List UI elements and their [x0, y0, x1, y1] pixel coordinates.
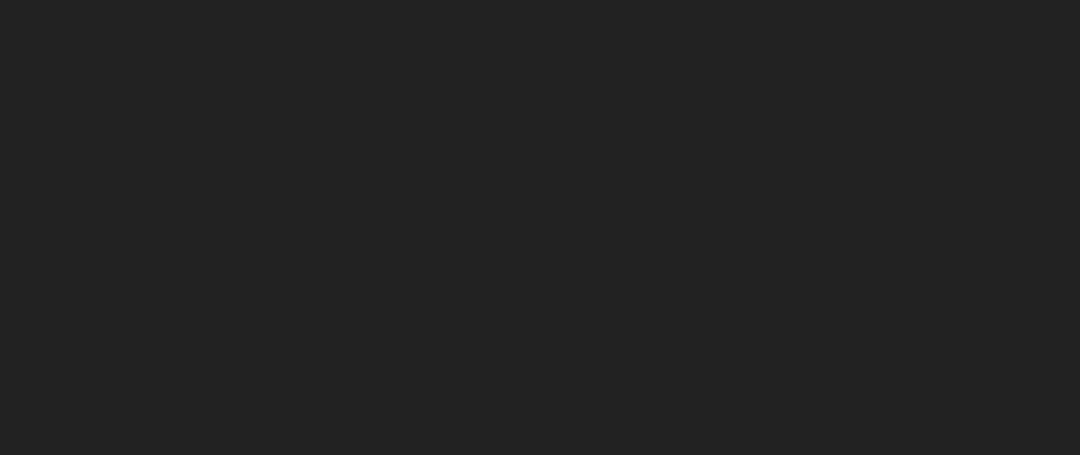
- scene-svg: [0, 0, 1080, 455]
- aerial-rendering-image: [0, 0, 1080, 455]
